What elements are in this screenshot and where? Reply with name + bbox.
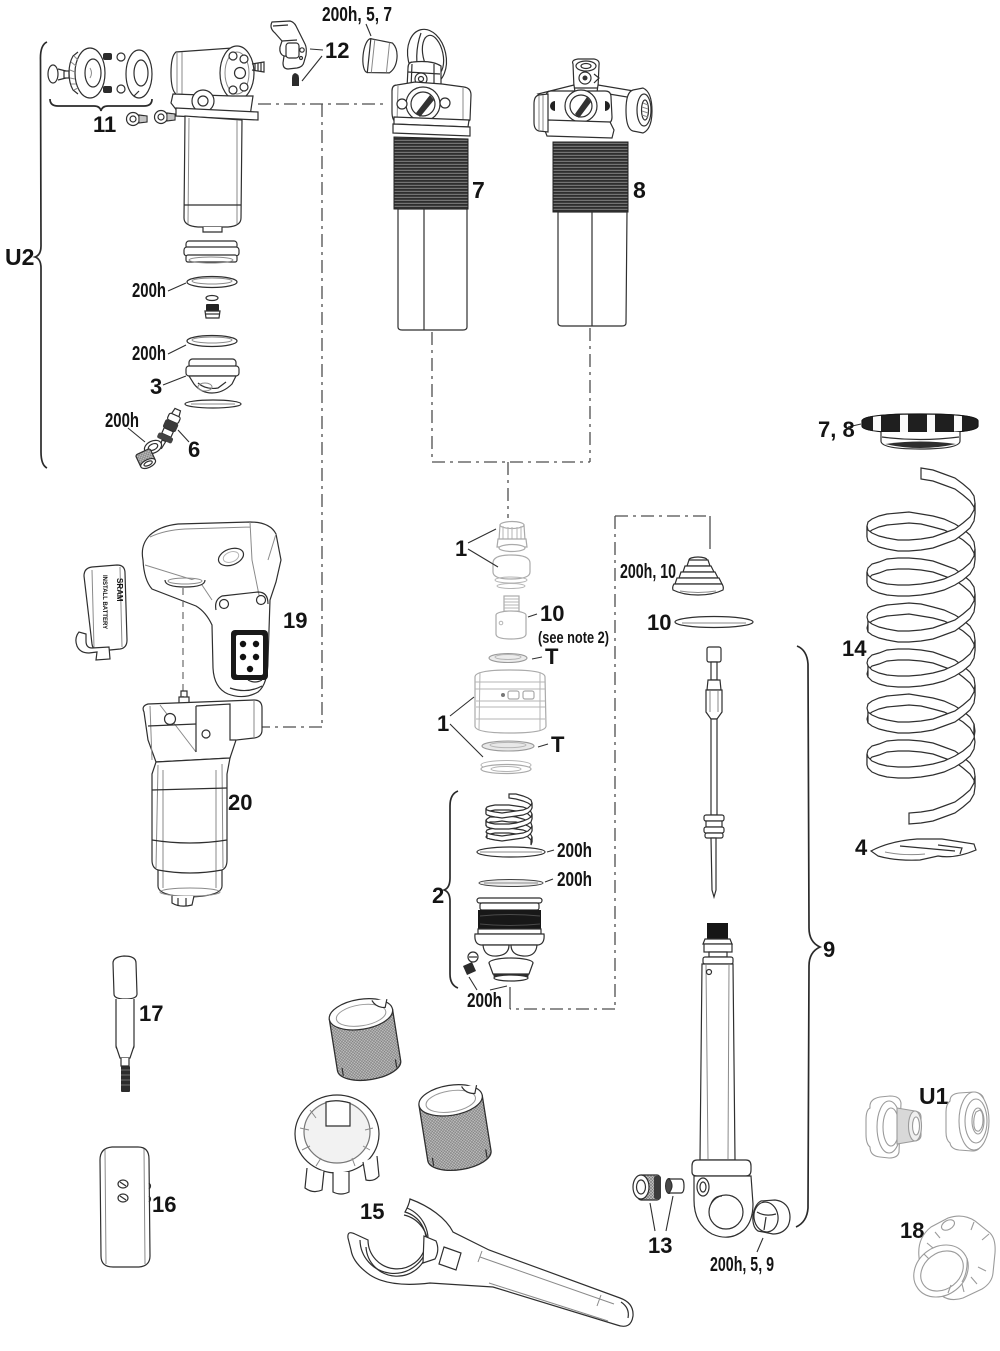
svg-text:7, 8: 7, 8	[818, 417, 855, 442]
svg-text:200h, 10: 200h, 10	[620, 561, 676, 583]
svg-text:200h: 200h	[557, 869, 592, 891]
svg-text:U2: U2	[5, 244, 34, 270]
svg-text:200h, 5, 7: 200h, 5, 7	[322, 4, 392, 26]
svg-text:3: 3	[150, 374, 162, 399]
svg-text:12: 12	[325, 38, 349, 63]
svg-text:T: T	[551, 732, 565, 757]
svg-text:11: 11	[93, 112, 116, 137]
svg-text:9: 9	[823, 937, 835, 962]
svg-text:200h, 5, 9: 200h, 5, 9	[710, 1254, 774, 1276]
svg-text:7: 7	[472, 177, 485, 203]
svg-text:10: 10	[647, 610, 671, 635]
svg-text:14: 14	[842, 636, 867, 661]
svg-text:SRAM: SRAM	[115, 578, 124, 602]
svg-text:8: 8	[633, 177, 646, 203]
svg-text:4: 4	[855, 835, 868, 860]
svg-text:1: 1	[455, 536, 467, 561]
svg-text:6: 6	[188, 437, 200, 462]
svg-text:200h: 200h	[132, 280, 166, 302]
svg-text:200h: 200h	[105, 410, 139, 432]
svg-text:1: 1	[437, 711, 449, 736]
svg-text:T: T	[545, 644, 559, 669]
svg-text:15: 15	[360, 1199, 384, 1224]
svg-text:INSTALL BATTERY: INSTALL BATTERY	[101, 575, 107, 629]
svg-text:200h: 200h	[467, 990, 502, 1012]
svg-text:16: 16	[152, 1192, 176, 1217]
svg-text:200h: 200h	[132, 343, 166, 365]
svg-text:17: 17	[139, 1001, 163, 1026]
svg-text:13: 13	[648, 1233, 672, 1258]
svg-text:200h: 200h	[557, 840, 592, 862]
svg-text:2: 2	[432, 883, 444, 908]
svg-text:20: 20	[228, 790, 252, 815]
svg-text:10: 10	[540, 601, 564, 626]
svg-text:19: 19	[283, 608, 307, 633]
svg-text:U1: U1	[919, 1083, 949, 1109]
